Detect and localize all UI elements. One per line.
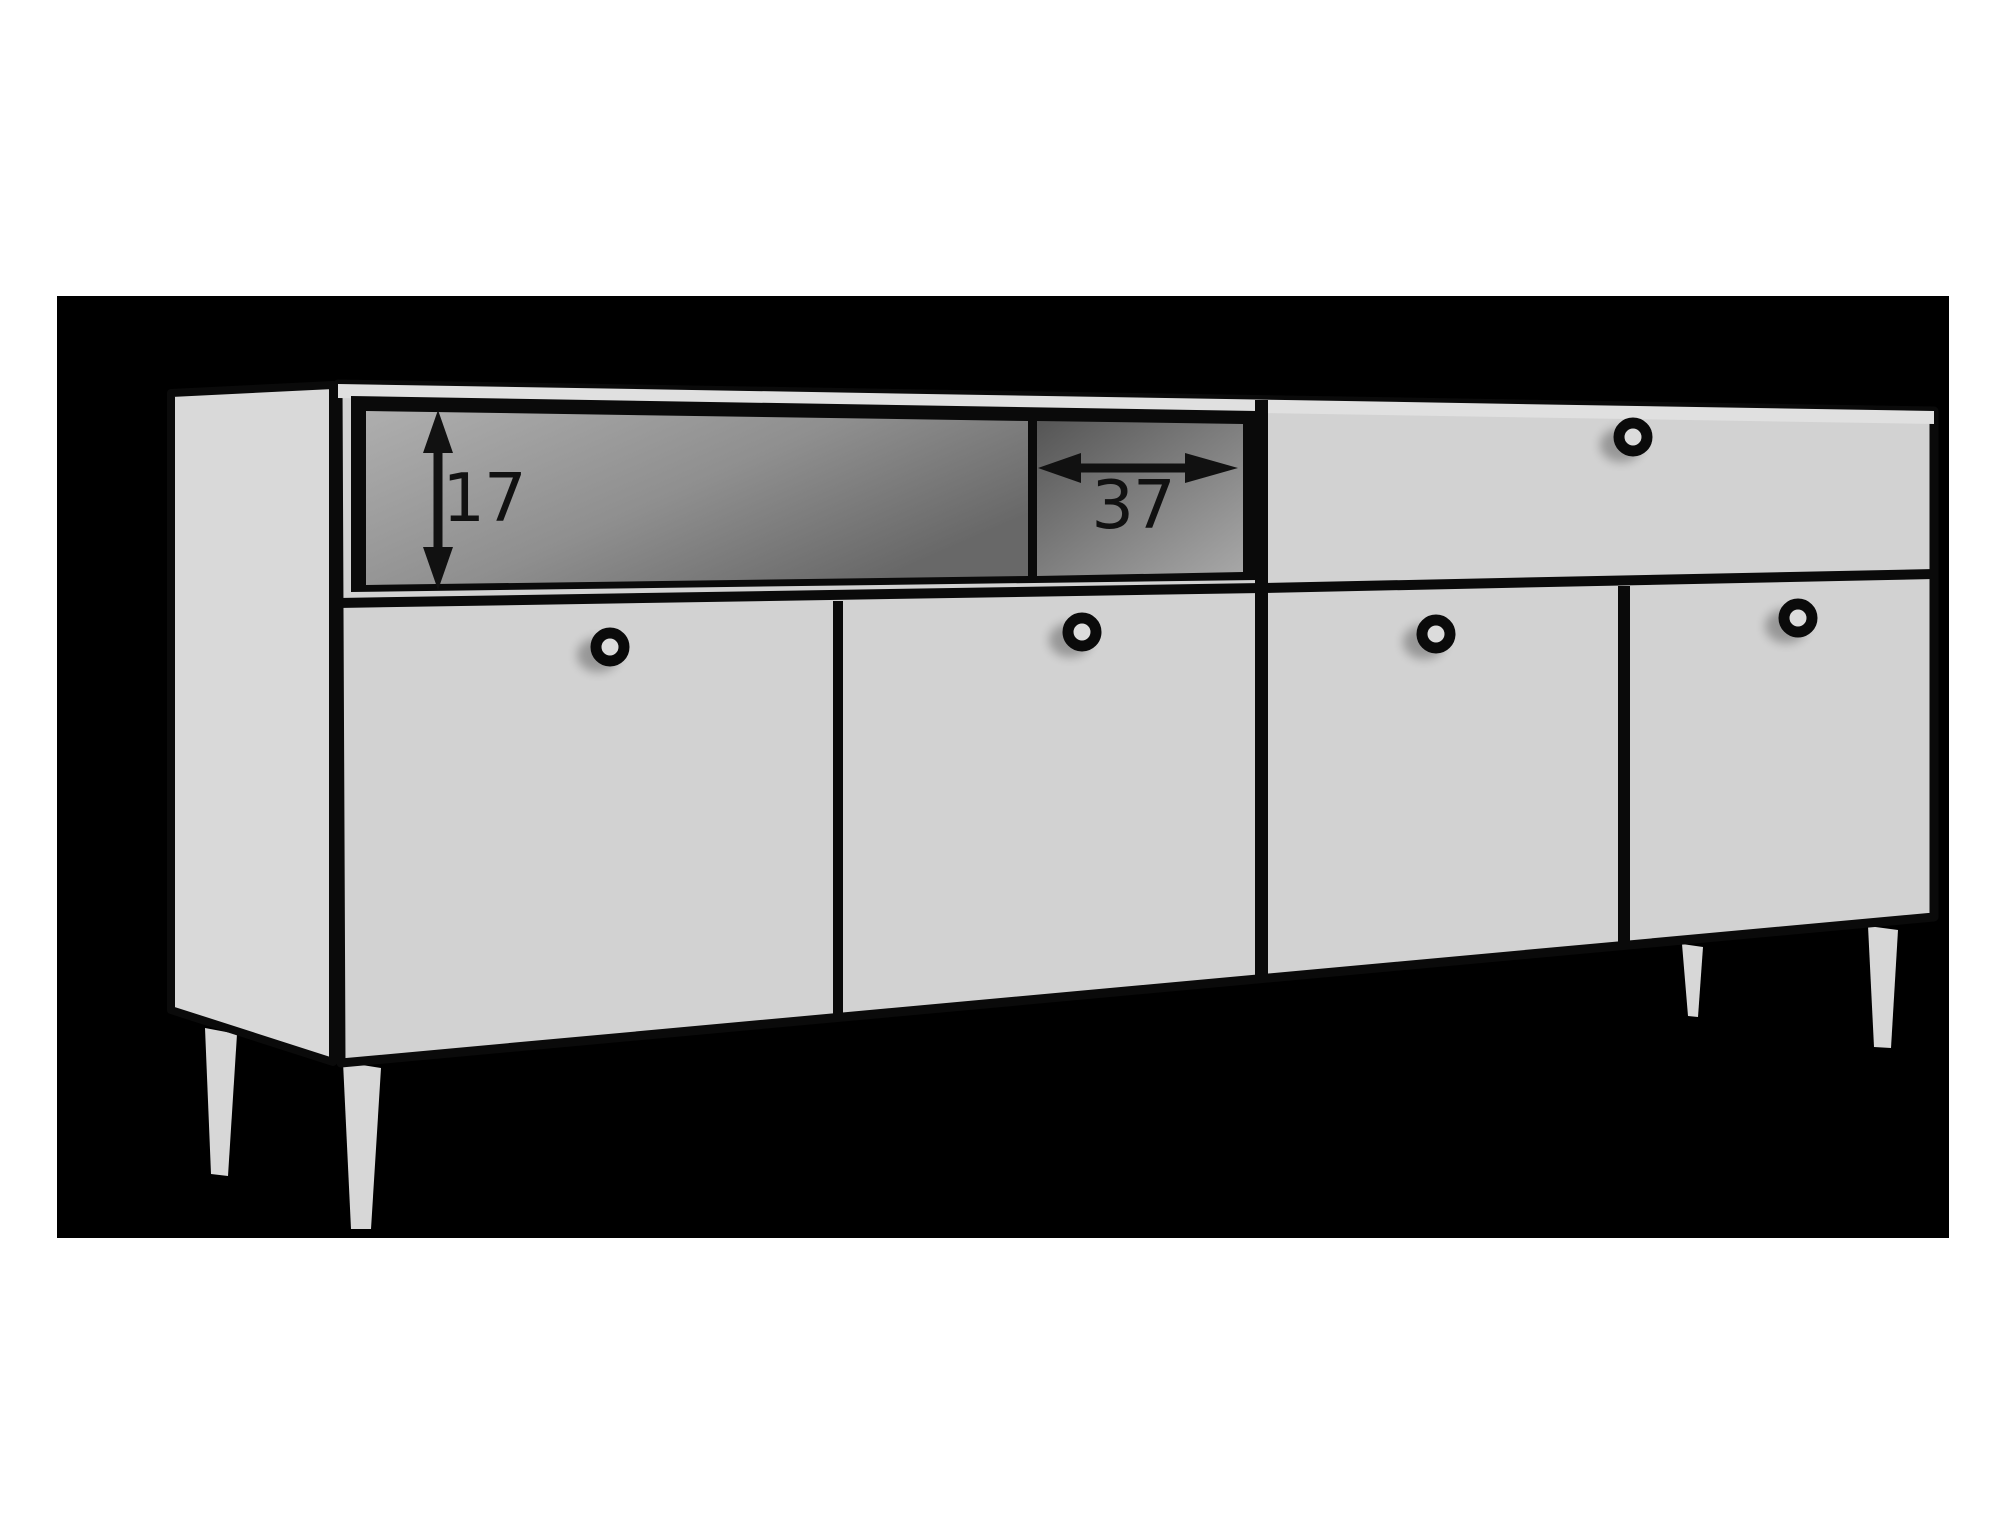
divider-doors-right bbox=[1618, 586, 1630, 946]
furniture-dimension-diagram: 17 37 bbox=[0, 0, 2000, 1535]
divider-doors-left bbox=[833, 601, 843, 1019]
cabinet-side-panel bbox=[171, 385, 333, 1062]
shelf-width-label: 37 bbox=[1091, 466, 1174, 544]
cabinet-drawing-canvas: 17 37 bbox=[0, 0, 2000, 1535]
divider-center bbox=[1255, 400, 1268, 981]
shelf-height-label: 17 bbox=[442, 459, 525, 537]
